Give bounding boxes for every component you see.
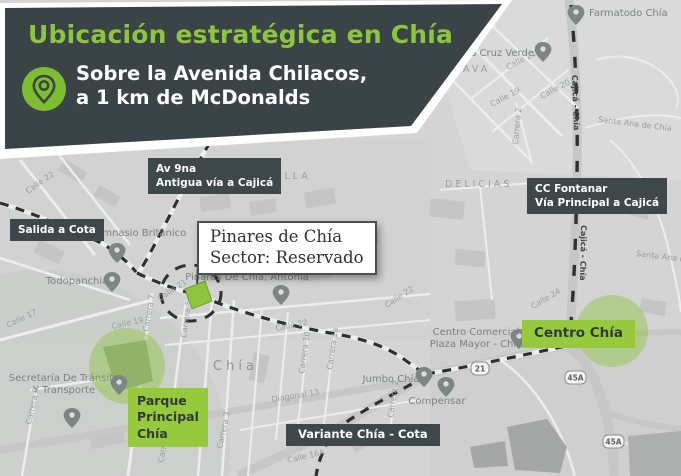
centro-chia-text: Centro Chía <box>534 325 623 341</box>
pinares-info-box: Pinares de Chía Sector: Reservado <box>197 221 377 275</box>
pinares-line1: Pinares de Chía <box>210 226 364 247</box>
city-label-chia: Chía <box>213 359 258 374</box>
callout-variante-text: Variante Chía - Cota <box>298 427 428 441</box>
callout-fontanar-line1: CC Fontanar <box>535 182 659 196</box>
svg-text:Jumbo Chía: Jumbo Chía <box>362 373 420 385</box>
callout-salida-text: Salida a Cota <box>18 224 96 236</box>
svg-text:Secretaría De Tránsito: Secretaría De Tránsito <box>9 372 120 384</box>
label-parque-principal: Parque Principal Chía <box>128 388 208 447</box>
area-ava: AVA <box>463 64 490 75</box>
road-label-cajica-chia-2: Cajicá - Chía <box>578 225 588 281</box>
pinares-line2: Sector: Reservado <box>210 247 364 268</box>
callout-av-9na: Av 9na Antigua vía a Cajicá <box>148 158 281 194</box>
subtitle-line1: Sobre la Avenida Chilacos, <box>76 62 367 86</box>
callout-fontanar-line2: Vía Principal a Cajicá <box>535 196 659 210</box>
callout-av9na-line1: Av 9na <box>156 162 273 176</box>
parque-line3: Chía <box>137 426 199 442</box>
svg-text:45A: 45A <box>605 438 621 447</box>
callout-av9na-line2: Antigua vía a Cajicá <box>156 176 273 190</box>
svg-text:Plaza Mayor - Chía: Plaza Mayor - Chía <box>430 338 523 350</box>
location-pin-icon <box>21 66 67 112</box>
svg-text:Todopanchia: Todopanchia <box>45 276 109 287</box>
area-delicias: DELICIAS <box>445 179 512 190</box>
parque-line2: Principal <box>137 409 199 425</box>
svg-text:Gimnasio Británico: Gimnasio Británico <box>92 227 187 239</box>
label-centro-chia: Centro Chía <box>522 320 635 348</box>
svg-text:45A: 45A <box>567 374 583 383</box>
parque-line1: Parque <box>137 393 199 409</box>
svg-text:21: 21 <box>475 365 485 374</box>
map-canvas: Cajicá - Chía Cajicá - Chía Calle 22 Cal… <box>0 0 681 476</box>
page-subtitle: Sobre la Avenida Chilacos, a 1 km de McD… <box>76 62 367 110</box>
subtitle-line2: a 1 km de McDonalds <box>76 86 367 110</box>
svg-text:Farmatodo Chía: Farmatodo Chía <box>589 7 668 19</box>
callout-cc-fontanar: CC Fontanar Vía Principal a Cajicá <box>527 178 667 214</box>
callout-salida-a-cota: Salida a Cota <box>10 219 104 241</box>
svg-text:Y Transporte: Y Transporte <box>32 385 95 396</box>
svg-text:Compensar: Compensar <box>408 396 466 407</box>
callout-variante: Variante Chía - Cota <box>286 424 440 446</box>
page-title: Ubicación estratégica en Chía <box>28 20 453 49</box>
svg-text:Centro Comercial: Centro Comercial <box>433 327 520 338</box>
